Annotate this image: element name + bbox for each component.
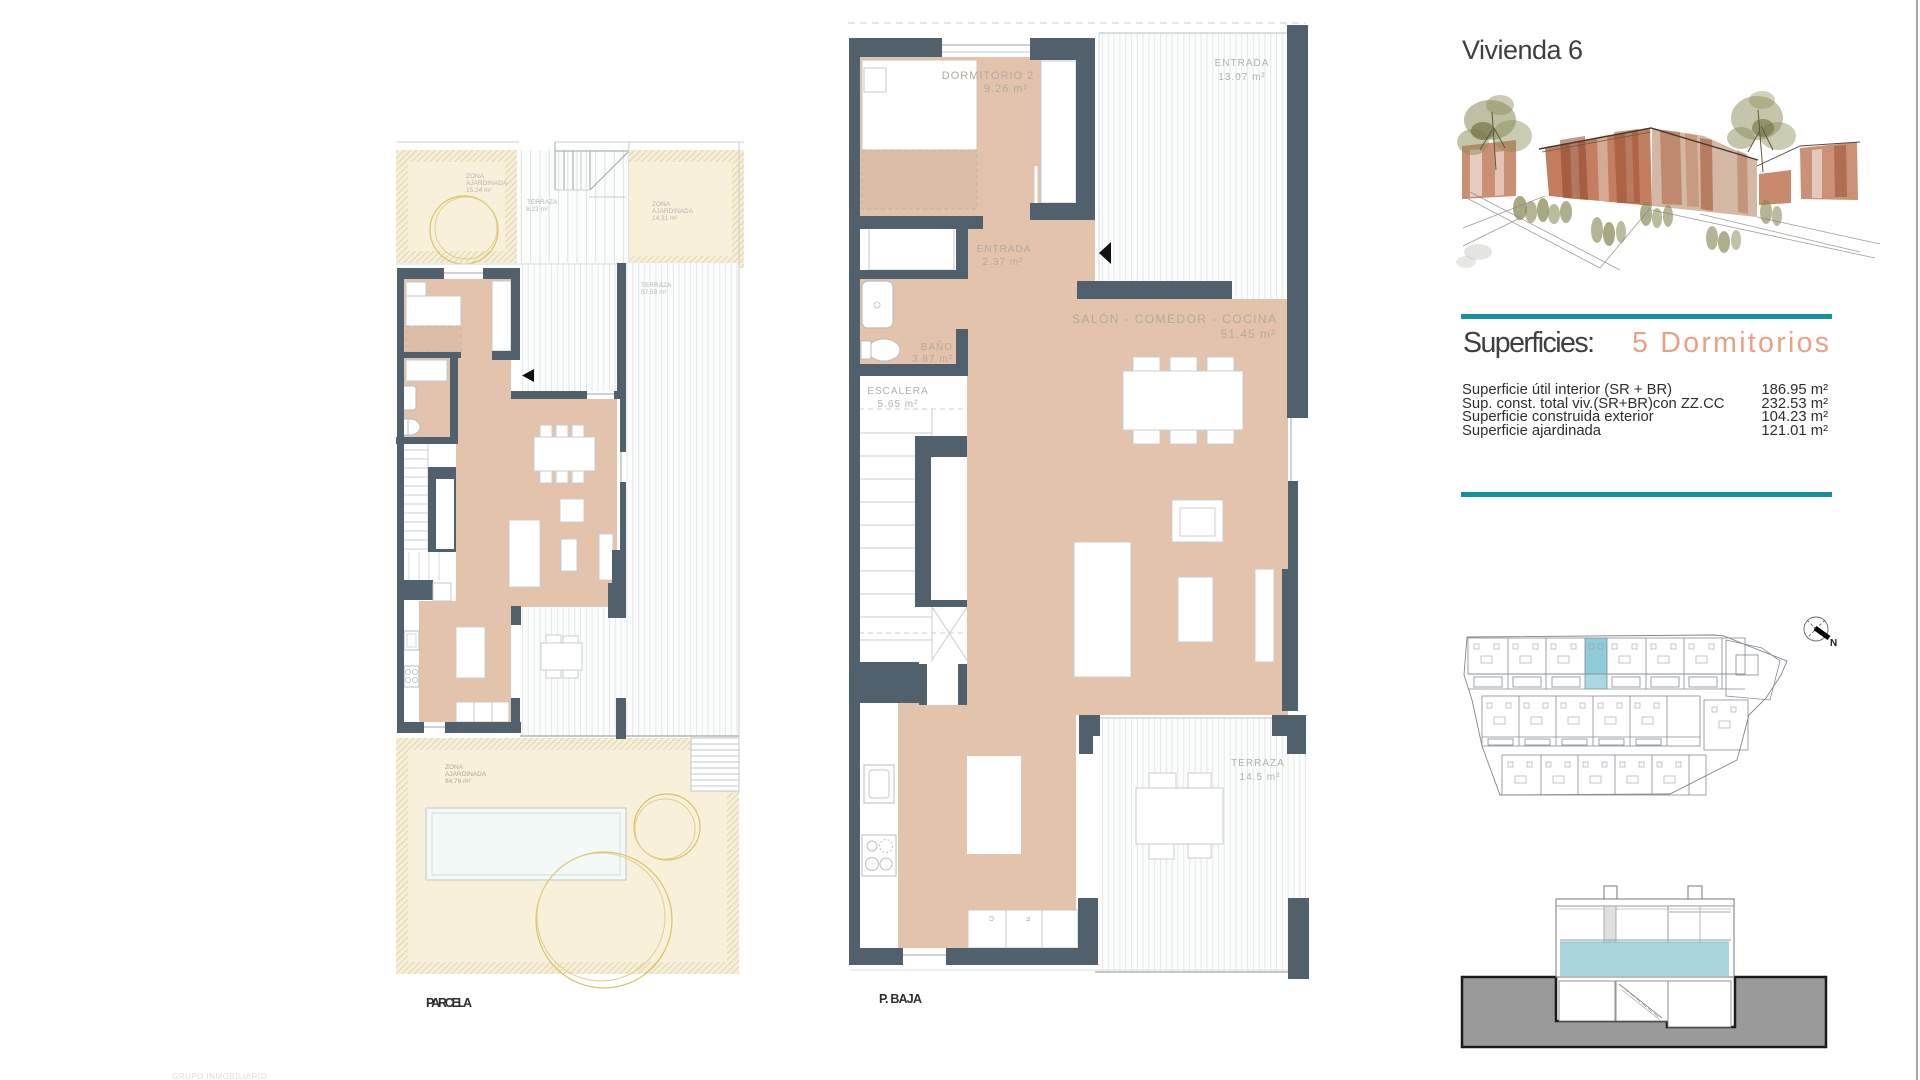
- svg-text:Superficies:: Superficies:: [1463, 327, 1595, 359]
- svg-text:57.59 m²: 57.59 m²: [641, 289, 667, 296]
- svg-text:Vivienda 6: Vivienda 6: [1462, 35, 1585, 65]
- svg-text:13.07 m²: 13.07 m²: [1218, 72, 1265, 83]
- svg-text:C: C: [989, 914, 994, 921]
- svg-text:ENTRADA: ENTRADA: [977, 244, 1032, 255]
- svg-text:51.45 m²: 51.45 m²: [1221, 327, 1276, 341]
- svg-text:GRUPO INMOBILIARIO: GRUPO INMOBILIARIO: [172, 1072, 267, 1080]
- svg-text:2.37 m²: 2.37 m²: [983, 257, 1024, 268]
- svg-text:8.22 m²: 8.22 m²: [526, 206, 549, 213]
- svg-text:84.76 m²: 84.76 m²: [445, 778, 471, 785]
- svg-text:3.87 m²: 3.87 m²: [912, 354, 953, 365]
- svg-text:14.31 m²: 14.31 m²: [652, 215, 678, 222]
- svg-text:ESCALERA: ESCALERA: [867, 386, 928, 397]
- svg-text:ZONA: ZONA: [466, 173, 485, 180]
- svg-text:P. BAJA: P. BAJA: [879, 992, 922, 1006]
- svg-text:14.5 m²: 14.5 m²: [1240, 772, 1281, 783]
- svg-text:ZONA: ZONA: [652, 201, 671, 208]
- svg-text:15.24 m²: 15.24 m²: [466, 187, 492, 194]
- svg-text:TERRAZA: TERRAZA: [1231, 758, 1285, 769]
- svg-text:F: F: [1026, 914, 1030, 921]
- svg-text:AJARDINADA: AJARDINADA: [652, 208, 694, 215]
- svg-text:N: N: [1830, 638, 1837, 649]
- svg-text:Superficie ajardinada: Superficie ajardinada: [1462, 423, 1602, 439]
- svg-text:ENTRADA: ENTRADA: [1215, 58, 1270, 69]
- svg-text:ZONA: ZONA: [445, 764, 464, 771]
- svg-text:9.26 m²: 9.26 m²: [984, 83, 1028, 95]
- svg-text:AJARDINADA: AJARDINADA: [466, 180, 508, 187]
- svg-text:PARCELA: PARCELA: [426, 996, 472, 1010]
- svg-text:AJARDINADA: AJARDINADA: [445, 771, 487, 778]
- svg-text:TERRAZA: TERRAZA: [527, 199, 558, 206]
- svg-text:DORMITORIO 2: DORMITORIO 2: [942, 70, 1034, 82]
- svg-text:TERRAZA: TERRAZA: [641, 282, 672, 289]
- svg-text:5.65 m²: 5.65 m²: [878, 399, 919, 410]
- svg-text:BAÑO: BAÑO: [921, 340, 953, 353]
- svg-text:121.01 m²: 121.01 m²: [1761, 423, 1828, 439]
- svg-text:5 Dormitorios: 5 Dormitorios: [1632, 327, 1829, 359]
- svg-text:SALÓN - COMEDOR - COCINA: SALÓN - COMEDOR - COCINA: [1072, 311, 1276, 326]
